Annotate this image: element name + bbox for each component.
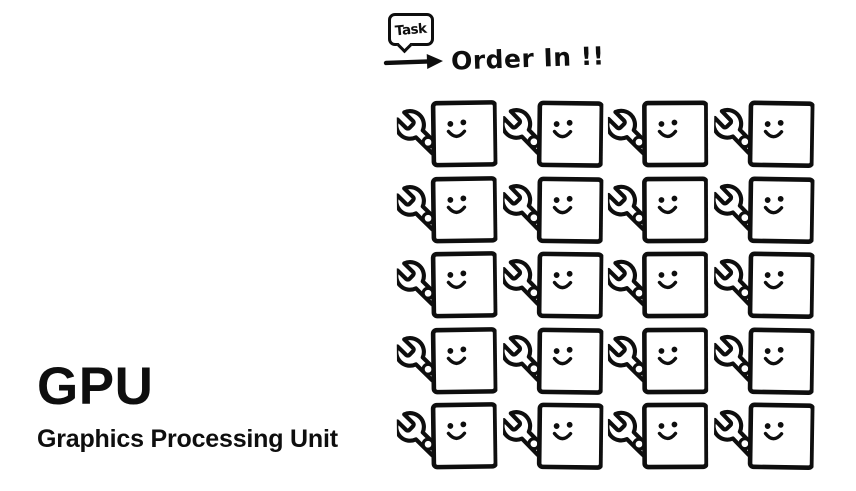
- worker-unit: [503, 176, 603, 244]
- worker-unit: [397, 402, 497, 470]
- worker-unit: [714, 100, 814, 168]
- worker-unit: [714, 176, 814, 244]
- task-bubble-label: Task: [395, 20, 428, 39]
- arrow-right-icon: [383, 51, 446, 73]
- hand-icon: [739, 439, 749, 449]
- worker-unit: [608, 251, 708, 319]
- task-speech-bubble: Task: [388, 13, 434, 46]
- worker-grid: [397, 100, 819, 478]
- hand-icon: [739, 363, 749, 373]
- worker-unit: [714, 402, 814, 470]
- hand-icon: [739, 212, 749, 222]
- worker-unit: [503, 100, 603, 168]
- worker-unit: [397, 251, 497, 319]
- worker-unit: [397, 100, 497, 168]
- worker-unit: [608, 176, 708, 244]
- worker-unit: [503, 327, 603, 395]
- hand-icon: [528, 439, 538, 449]
- worker-unit: [714, 327, 814, 395]
- order-in-caption: Order In !!: [451, 41, 605, 75]
- hand-icon: [528, 363, 538, 373]
- worker-unit: [608, 100, 708, 168]
- brand-block: GPU Graphics Processing Unit: [37, 360, 338, 452]
- worker-unit: [503, 251, 603, 319]
- hand-icon: [528, 212, 538, 222]
- hand-icon: [739, 288, 749, 298]
- page-subtitle: Graphics Processing Unit: [37, 427, 338, 452]
- worker-unit: [714, 251, 814, 319]
- worker-unit: [608, 402, 708, 470]
- gpu-illustration: Task Order In !!: [0, 0, 856, 491]
- hand-icon: [528, 288, 538, 298]
- hand-icon: [528, 137, 538, 147]
- worker-unit: [608, 327, 708, 395]
- worker-unit: [397, 176, 497, 244]
- speech-bubble-tail-icon: [397, 38, 413, 54]
- page-title: GPU: [37, 360, 338, 413]
- worker-unit: [503, 402, 603, 470]
- worker-unit: [397, 327, 497, 395]
- hand-icon: [739, 137, 749, 147]
